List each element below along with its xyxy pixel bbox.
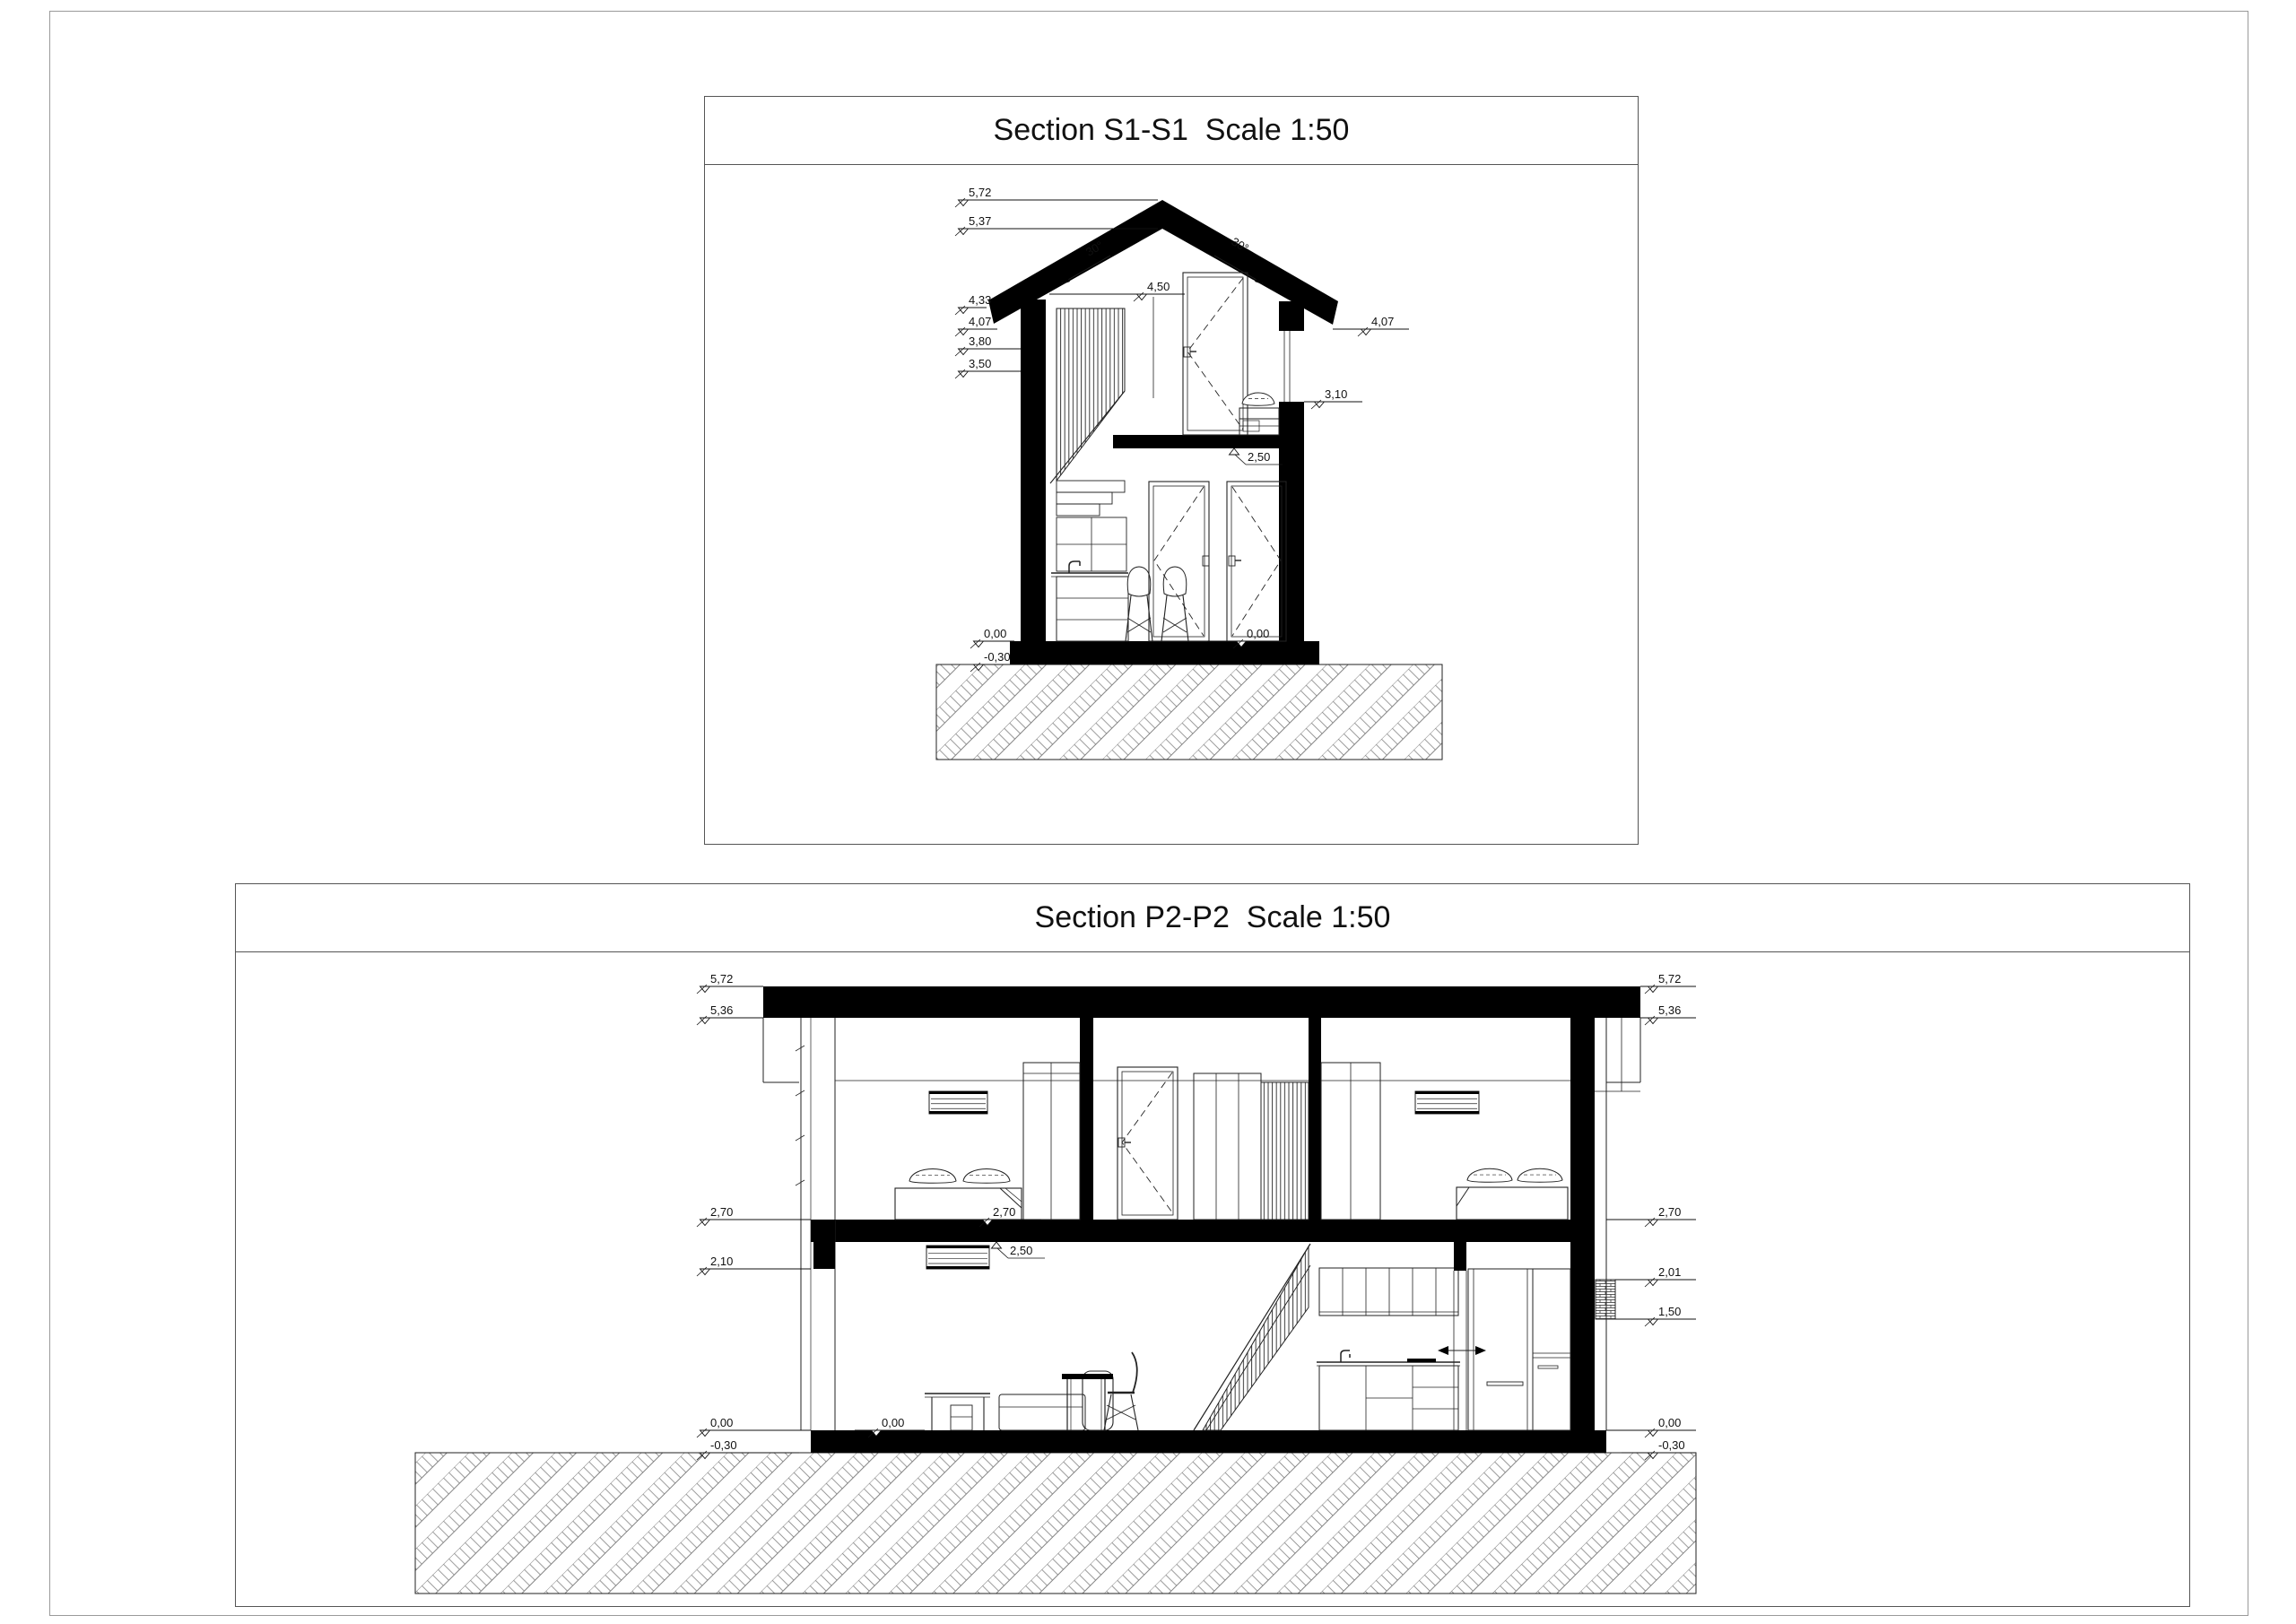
section-s1-panel: Section S1-S1 Scale 1:50 30°30°5,725,374…	[704, 96, 1639, 845]
svg-text:2,70: 2,70	[1658, 1205, 1681, 1219]
section-p2-drawing: 5,725,362,702,100,00-0,305,725,362,702,0…	[236, 952, 2187, 1605]
section-s1-drawing: 30°30°5,725,374,334,073,803,500,00-0,304…	[705, 165, 1636, 843]
svg-text:4,07: 4,07	[1371, 315, 1394, 328]
svg-text:2,01: 2,01	[1658, 1265, 1681, 1279]
svg-text:2,50: 2,50	[1248, 450, 1270, 464]
svg-text:2,50: 2,50	[1010, 1244, 1032, 1257]
svg-text:3,50: 3,50	[969, 357, 991, 370]
svg-text:0,00: 0,00	[882, 1416, 904, 1429]
svg-text:4,50: 4,50	[1147, 280, 1170, 293]
svg-text:3,80: 3,80	[969, 334, 991, 348]
svg-text:0,00: 0,00	[710, 1416, 733, 1429]
svg-text:0,00: 0,00	[1658, 1416, 1681, 1429]
svg-text:-0,30: -0,30	[710, 1438, 737, 1452]
section-s1-title: Section S1-S1 Scale 1:50	[705, 97, 1638, 165]
section-p2-title: Section P2-P2 Scale 1:50	[236, 884, 2189, 952]
section-p2-panel: Section P2-P2 Scale 1:50 5,725,362,702,1…	[235, 883, 2190, 1607]
drawing-sheet: Section S1-S1 Scale 1:50 30°30°5,725,374…	[0, 0, 2296, 1624]
svg-text:5,36: 5,36	[710, 1003, 733, 1017]
svg-text:4,33: 4,33	[969, 293, 991, 307]
svg-text:2,70: 2,70	[993, 1205, 1015, 1219]
svg-text:5,72: 5,72	[1658, 972, 1681, 986]
svg-text:4,07: 4,07	[969, 315, 991, 328]
svg-text:5,36: 5,36	[1658, 1003, 1681, 1017]
svg-text:0,00: 0,00	[1247, 627, 1269, 640]
svg-text:0,00: 0,00	[984, 627, 1006, 640]
svg-text:-0,30: -0,30	[984, 650, 1011, 664]
svg-text:3,10: 3,10	[1325, 387, 1347, 401]
svg-text:5,72: 5,72	[710, 972, 733, 986]
svg-text:5,72: 5,72	[969, 186, 991, 199]
svg-text:5,37: 5,37	[969, 214, 991, 228]
svg-text:2,10: 2,10	[710, 1255, 733, 1268]
svg-text:1,50: 1,50	[1658, 1305, 1681, 1318]
svg-text:2,70: 2,70	[710, 1205, 733, 1219]
svg-text:-0,30: -0,30	[1658, 1438, 1685, 1452]
